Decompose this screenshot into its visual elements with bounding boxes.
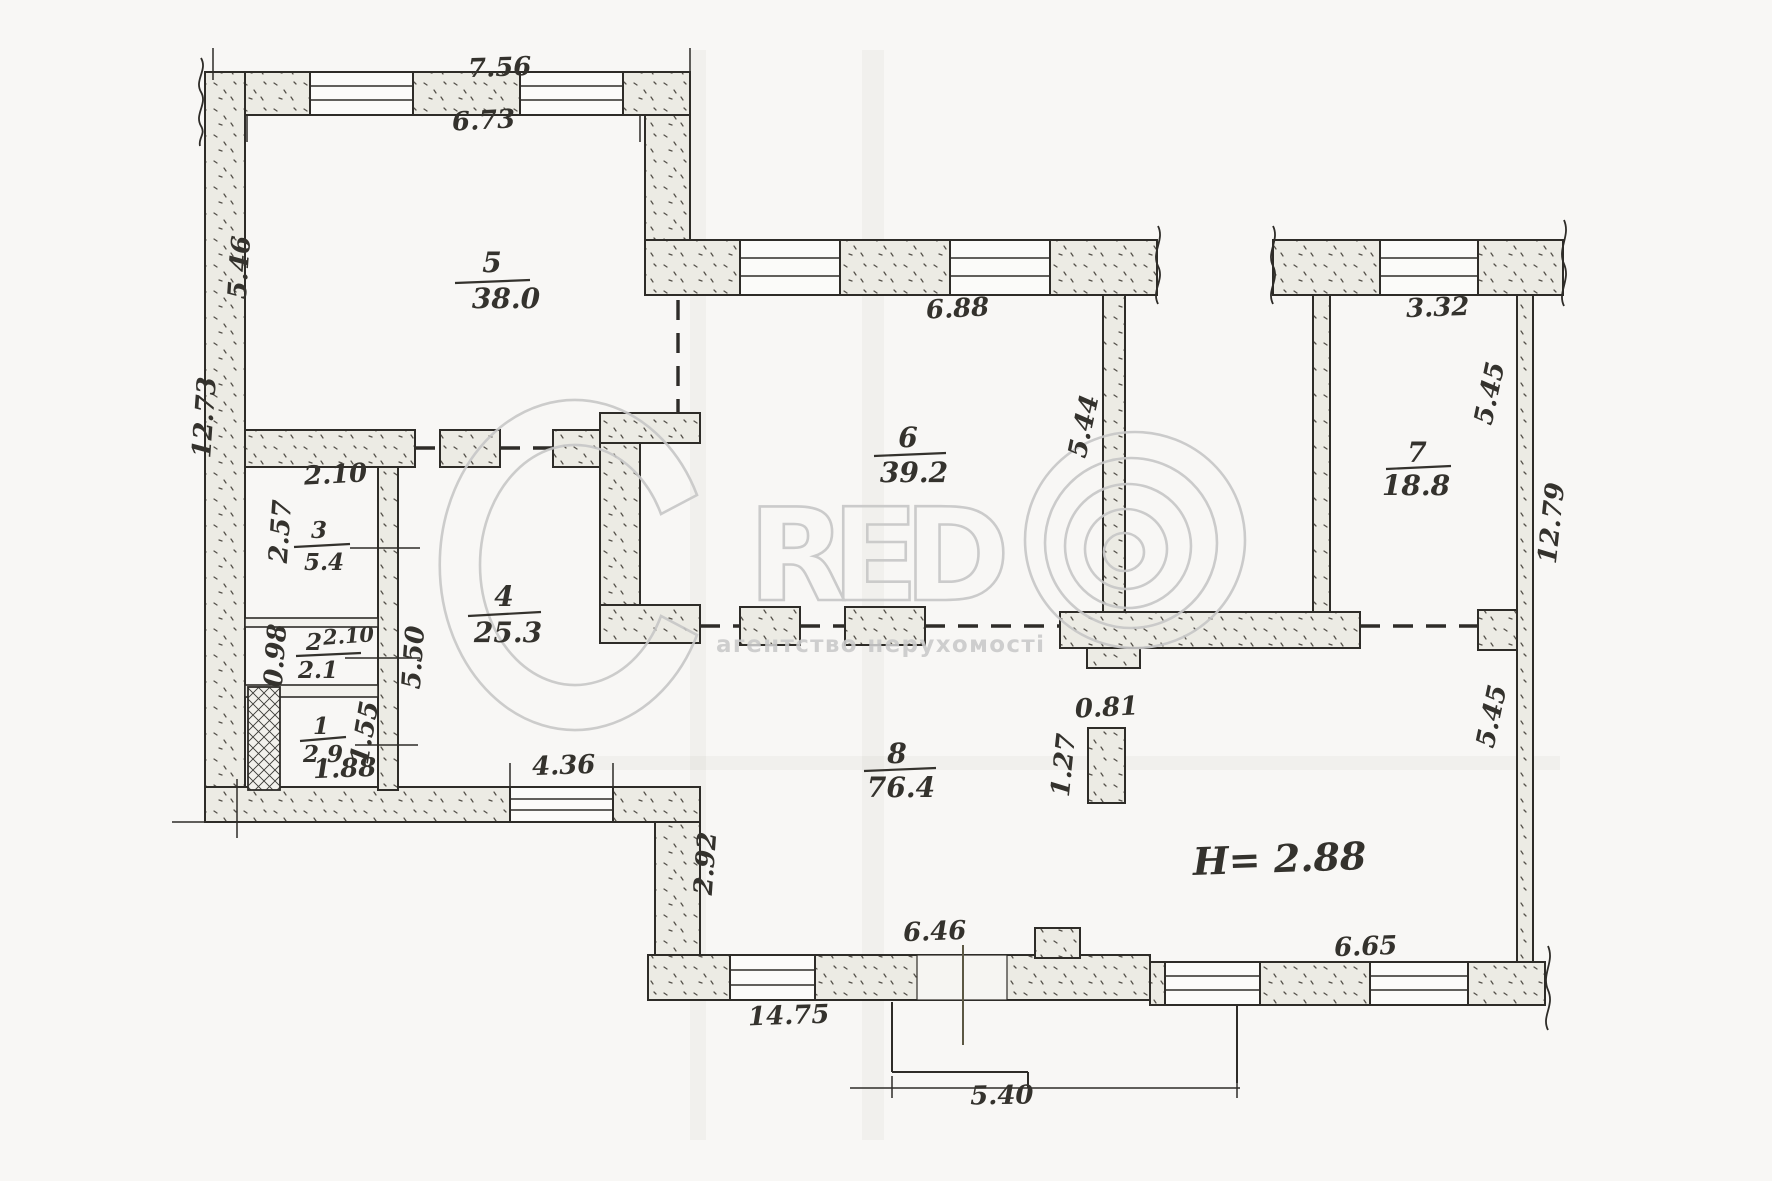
dim-756: 7.56 xyxy=(468,52,532,84)
dim-550: 5.50 xyxy=(397,625,431,690)
dim-545-lower: 5.45 xyxy=(1471,682,1514,750)
room6-area: 39.2 xyxy=(880,456,948,489)
porch-outline xyxy=(892,1002,1237,1088)
room1-area: 2.9 xyxy=(302,741,343,768)
wall-room6-right xyxy=(1103,295,1125,612)
dim-210-room2: 2.10 xyxy=(321,621,375,650)
shaft-crosshatched xyxy=(248,687,280,790)
window xyxy=(1370,962,1468,1005)
window xyxy=(1165,962,1260,1005)
dim-332: 3.32 xyxy=(1406,292,1470,324)
window xyxy=(950,240,1050,295)
dim-210-room3: 2.10 xyxy=(302,458,368,491)
room-label-1: 1 2.9 xyxy=(300,713,346,768)
porch-dimension-line xyxy=(850,1076,1240,1098)
room7-area: 18.8 xyxy=(1382,469,1450,502)
room3-area: 5.4 xyxy=(304,549,344,576)
room-label-6: 6 39.2 xyxy=(874,421,948,489)
dim-1273: 12.73 xyxy=(187,376,223,459)
dim-673: 6.73 xyxy=(451,104,516,137)
room8-number: 8 xyxy=(886,737,906,770)
window xyxy=(520,72,623,115)
dim-546: 5.46 xyxy=(223,235,257,300)
room2-area: 2.1 xyxy=(297,657,338,684)
dim-545-upper: 5.45 xyxy=(1469,359,1512,427)
pier-bottom-wall xyxy=(1035,928,1080,958)
room7-number: 7 xyxy=(1407,436,1427,469)
dim-1475: 14.75 xyxy=(748,1000,830,1033)
room-label-3: 3 5.4 xyxy=(294,517,350,576)
pier-below-room7-wall xyxy=(1087,648,1140,668)
window xyxy=(310,72,413,115)
dim-1279: 12.79 xyxy=(1533,481,1571,565)
dim-081: 0.81 xyxy=(1074,691,1139,724)
room-label-7: 7 18.8 xyxy=(1382,436,1451,502)
room3-number: 3 xyxy=(311,517,327,544)
dim-665: 6.65 xyxy=(1334,931,1398,963)
room4-area: 25.3 xyxy=(473,616,542,649)
window xyxy=(740,240,840,295)
dim-127: 1.27 xyxy=(1046,732,1082,798)
wall-bottom-center xyxy=(648,955,1150,1000)
dim-544: 5.44 xyxy=(1063,392,1106,460)
wall-right-outer xyxy=(1517,295,1533,1000)
pier-left-of-t xyxy=(553,430,600,467)
dim-646: 6.46 xyxy=(903,916,967,948)
dim-436: 4.36 xyxy=(532,750,596,782)
dim-098: 0.98 xyxy=(259,623,293,688)
break-top-left xyxy=(199,58,203,146)
dim-688: 6.88 xyxy=(925,292,990,325)
window xyxy=(1380,240,1478,295)
column-081x127 xyxy=(1088,728,1125,803)
room8-area: 76.4 xyxy=(867,771,935,804)
wall-rooms123-right xyxy=(378,467,398,790)
window xyxy=(730,955,815,1000)
room-label-4: 4 25.3 xyxy=(468,580,542,649)
floor-plan-svg: RED агентство нерухомості 7.56 6.73 5.46… xyxy=(0,0,1772,1181)
ceiling-height-label: H= 2.88 xyxy=(1191,833,1367,884)
wall-room7-left xyxy=(1313,295,1330,612)
room-label-5: 5 38.0 xyxy=(455,246,541,315)
wall-step xyxy=(645,115,690,245)
room6-number: 6 xyxy=(898,421,917,454)
scanned-floor-plan: RED агентство нерухомості 7.56 6.73 5.46… xyxy=(0,0,1772,1181)
window xyxy=(510,787,613,822)
wall-top-middle xyxy=(645,240,1157,295)
room5-number: 5 xyxy=(482,246,501,279)
watermark-letters-red: RED xyxy=(748,482,1016,631)
dim-257: 2.57 xyxy=(264,499,298,565)
pier-right-wall xyxy=(1478,610,1517,650)
room3-underline xyxy=(294,544,350,547)
room4-number: 4 xyxy=(494,580,513,613)
watermark-tagline: агентство нерухомості xyxy=(716,632,1046,658)
break-bottom-right-end xyxy=(1546,946,1550,1030)
room2-number: 2 xyxy=(305,629,322,656)
wall-bottom-left xyxy=(205,787,700,822)
room5-area: 38.0 xyxy=(472,282,541,315)
dim-540: 5.40 xyxy=(970,1080,1034,1111)
room1-number: 1 xyxy=(313,713,329,740)
dim-292: 2.92 xyxy=(689,831,723,897)
ticks-dim-673 xyxy=(247,115,640,142)
